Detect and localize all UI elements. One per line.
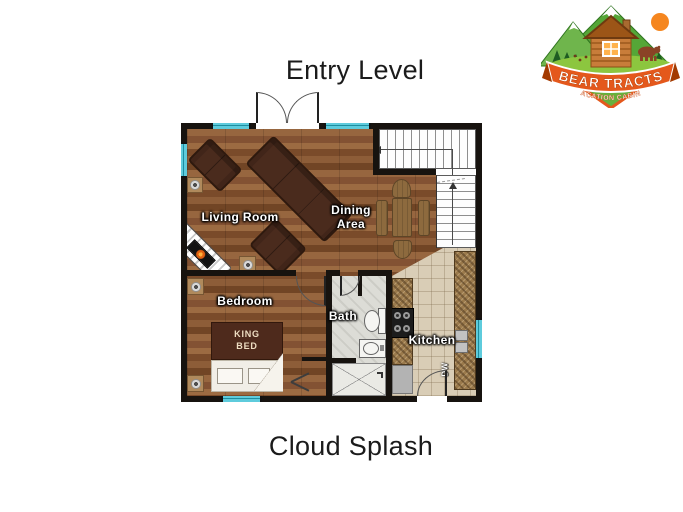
lamp-icon [190, 180, 200, 190]
dining-table [392, 198, 412, 237]
lamp-icon [191, 379, 201, 389]
entry-door-arc-right [287, 92, 319, 123]
window-pane [326, 125, 369, 126]
window-top-left [211, 123, 251, 129]
king-bed-label: KING BED [227, 329, 267, 352]
fireplace [181, 223, 231, 276]
burner-icon [403, 312, 410, 319]
living-room-label: Living Room [195, 211, 285, 225]
window-left-wall [181, 142, 187, 178]
wall-segment [326, 270, 332, 396]
sink-basin [363, 342, 379, 355]
kitchen-door-opening [417, 396, 447, 402]
refrigerator [392, 365, 413, 394]
burner-icon [394, 312, 401, 319]
fireplace-firebox [186, 239, 216, 269]
bed-pillow [217, 368, 243, 384]
lamp-icon [243, 260, 253, 270]
entry-door-opening [256, 123, 319, 129]
window-kitchen [476, 318, 482, 360]
shower-head-icon [377, 372, 383, 378]
king-bed: KING BED [211, 322, 283, 360]
stair-guide-line [452, 149, 453, 175]
bear-tracts-logo: BEAR TRACTS VACATION CABINS [541, 2, 681, 108]
window-pane [223, 398, 260, 399]
dining-area-label: Dining Area [326, 204, 376, 232]
floor-plan: KING BED DW [181, 123, 482, 402]
wall-segment [302, 357, 326, 361]
burner-icon [403, 325, 410, 332]
counter-right [454, 251, 476, 390]
window-pane [183, 144, 184, 176]
wall-segment [332, 270, 340, 276]
dining-chair-top [392, 179, 411, 198]
lamp-icon [191, 282, 201, 292]
window-top-right [324, 123, 371, 129]
page-title: Entry Level [205, 55, 505, 86]
window-bedroom [221, 396, 262, 402]
shower [332, 363, 386, 396]
dining-bench-left [376, 200, 388, 236]
stair-direction-arrow-up [449, 182, 457, 189]
nightstand [187, 278, 204, 295]
fireplace-clip [181, 223, 231, 276]
sun-icon [651, 13, 669, 31]
window-pane [213, 125, 249, 126]
wall-segment [181, 270, 296, 276]
kitchen-label: Kitchen [402, 334, 462, 348]
wall-segment [386, 270, 392, 396]
wall-segment [476, 123, 482, 402]
page: { "header": { "plan_title": "Entry Level… [0, 0, 683, 512]
faucet [380, 345, 384, 351]
stair-guide-line [381, 149, 453, 150]
nightstand [187, 375, 204, 392]
toilet-bowl [364, 310, 380, 332]
cabin-name: Cloud Splash [201, 431, 501, 462]
wall-segment [373, 169, 436, 175]
dining-bench-right [418, 200, 430, 236]
bath-label: Bath [323, 310, 363, 324]
burner-icon [394, 325, 401, 332]
wall-segment [373, 123, 379, 175]
bedroom-label: Bedroom [205, 295, 285, 309]
side-table [187, 177, 203, 193]
stair-edge-line [436, 175, 437, 248]
entry-door-arc-left [256, 92, 287, 123]
stair-guide-line [452, 189, 453, 245]
window-pane [478, 320, 479, 358]
